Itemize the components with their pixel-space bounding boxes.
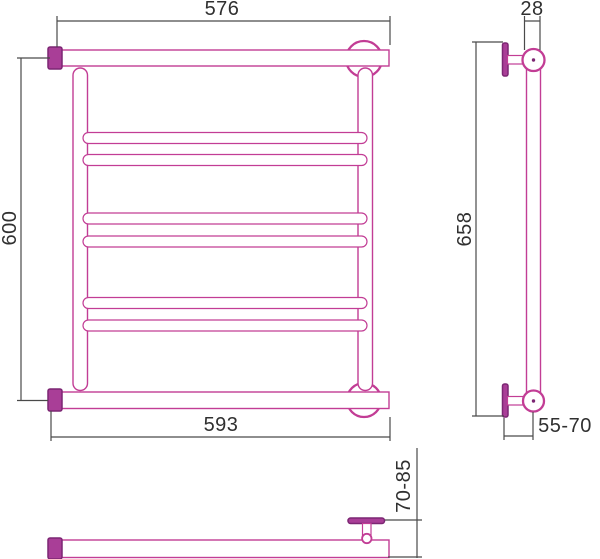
drawing-page: 576 600 593 28 658 55-70 70-85 [0,0,600,559]
plan-bracket-ring [362,534,371,543]
dimension-side-wall-offset: 55-70 [504,412,592,440]
dim-label-600: 600 [0,211,21,246]
dim-label-576: 576 [205,0,240,20]
plan-bar [61,540,389,558]
side-top-bracket-center-dot [532,58,535,61]
front-rung-2 [83,155,367,166]
dimension-line-600 [17,58,50,401]
front-view [48,41,389,417]
dimension-front-bottom-width: 593 [51,411,390,441]
dimension-side-height: 658 [454,42,504,416]
dimension-line-28 [525,16,541,50]
dimension-line-658 [472,42,504,416]
dimensions: 576 600 593 28 658 55-70 70-85 [0,0,592,558]
dimension-front-height: 600 [0,58,50,401]
front-right-vertical-tube [358,68,373,391]
front-rung-1 [83,133,367,144]
side-top-bracket-arm [508,56,524,65]
plan-view [48,518,389,559]
plan-wall-plate [348,518,385,524]
dimension-line-576 [57,16,390,47]
front-rung-3 [83,213,367,224]
dim-label-593: 593 [204,414,239,436]
side-bottom-bracket-arm [508,397,524,406]
side-tube [527,58,541,404]
dimension-side-tube-diameter: 28 [520,0,543,50]
front-left-vertical-tube [73,68,88,391]
front-rung-4 [83,236,367,247]
front-top-left-cap [48,47,62,69]
dim-label-658: 658 [454,212,476,247]
front-bottom-bar [61,392,389,409]
front-bottom-left-cap [48,389,62,411]
front-rung-5 [83,298,367,309]
dimension-plan-wall-depth: 70-85 [385,448,422,558]
dim-label-55-70: 55-70 [538,415,592,437]
plan-left-cap [48,538,62,559]
side-view [503,43,545,417]
front-rung-6 [83,320,367,331]
front-top-bar [61,50,389,66]
side-bottom-bracket-center-dot [532,399,535,402]
dimension-front-top-width: 576 [57,0,390,47]
dim-label-28: 28 [520,0,543,20]
technical-drawing-canvas: 576 600 593 28 658 55-70 70-85 [0,0,600,559]
dim-label-70-85: 70-85 [393,459,415,513]
